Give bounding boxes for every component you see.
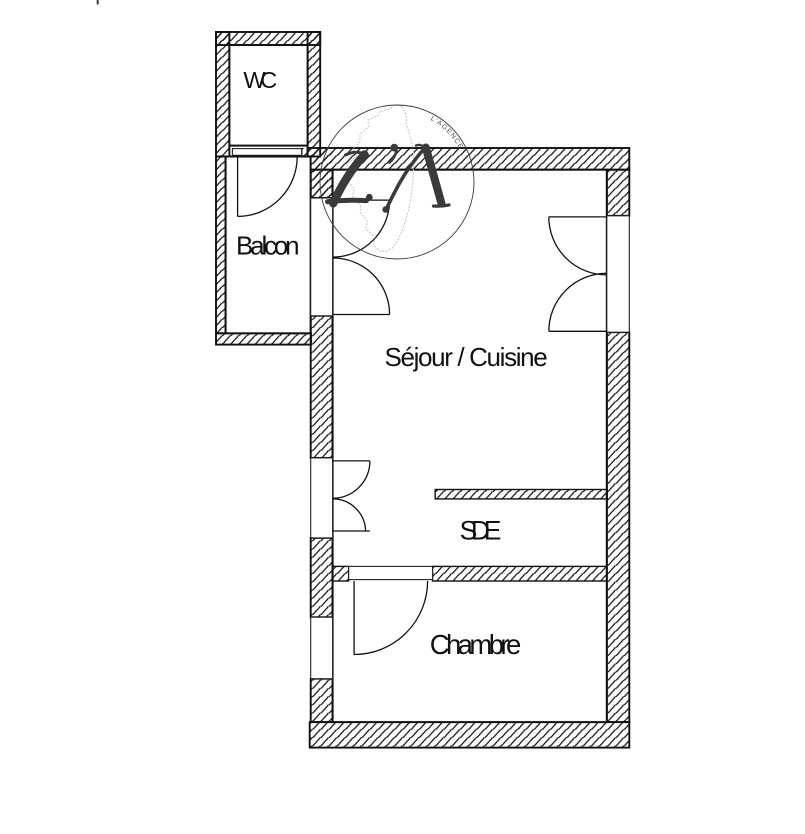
svg-text:WC: WC bbox=[243, 67, 277, 93]
svg-text:Séjour / Cuisine: Séjour / Cuisine bbox=[385, 342, 548, 372]
svg-text:Balcon: Balcon bbox=[236, 230, 300, 260]
svg-text:SDE: SDE bbox=[460, 515, 502, 545]
svg-text:Chambre: Chambre bbox=[430, 629, 522, 660]
